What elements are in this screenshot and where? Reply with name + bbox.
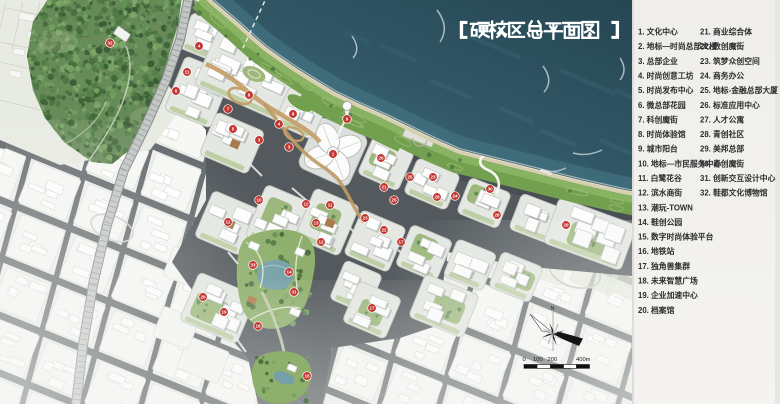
svg-text:3. 总部企业: 3. 总部企业 [638,56,678,66]
svg-text:28: 28 [494,213,500,218]
svg-text:12: 12 [303,202,309,207]
svg-text:1. 文化中心: 1. 文化中心 [638,27,678,37]
svg-text:28: 28 [434,195,440,200]
svg-text:20. 档案馆: 20. 档案馆 [638,305,675,315]
svg-text:23: 23 [362,216,368,221]
svg-text:3: 3 [288,145,291,150]
svg-text:7: 7 [227,107,230,112]
svg-text:11: 11 [185,70,190,75]
svg-text:9: 9 [346,117,349,122]
svg-text:30. 青创魔街: 30. 青创魔街 [700,158,744,168]
svg-text:12: 12 [225,220,231,225]
svg-text:17. 独角兽集群: 17. 独角兽集群 [638,261,690,271]
svg-text:16. 地铁站: 16. 地铁站 [638,246,675,256]
svg-text:31. 创新交互设计中心: 31. 创新交互设计中心 [700,173,776,183]
svg-text:31: 31 [291,290,297,295]
svg-text:1: 1 [332,152,335,157]
svg-text:11: 11 [328,203,333,208]
svg-text:4: 4 [278,122,281,127]
svg-text:25. 地标-金融总部大厦: 25. 地标-金融总部大厦 [700,85,778,95]
svg-text:5. 时尚发布中心: 5. 时尚发布中心 [638,85,694,95]
svg-text:10: 10 [256,198,262,203]
svg-text:200: 200 [548,357,558,363]
svg-text:22: 22 [381,228,387,233]
svg-text:23: 23 [430,175,436,180]
svg-text:20: 20 [200,295,206,300]
svg-text:23. 筑梦众创空间: 23. 筑梦众创空间 [700,56,760,66]
svg-text:29. 美邦总部: 29. 美邦总部 [700,144,744,154]
svg-text:12. 滨水商街: 12. 滨水商街 [638,188,682,198]
svg-text:33: 33 [250,263,256,268]
svg-text:28. 青创社区: 28. 青创社区 [700,129,744,139]
svg-text:12: 12 [318,240,324,245]
svg-text:11. 白鹭花谷: 11. 白鹭花谷 [638,173,682,183]
svg-text:13. 潮玩-TOWN: 13. 潮玩-TOWN [638,202,693,212]
svg-text:N: N [551,306,555,312]
svg-text:30: 30 [487,187,493,192]
svg-text:26. 标准应用中心: 26. 标准应用中心 [700,100,760,110]
svg-text:0: 0 [523,357,526,363]
svg-text:21: 21 [381,185,387,190]
svg-text:8: 8 [248,93,251,98]
svg-text:26: 26 [378,156,384,161]
svg-text:29: 29 [563,223,569,228]
svg-text:22. 数创魔街: 22. 数创魔街 [700,41,744,51]
svg-text:15. 数字时尚体验平台: 15. 数字时尚体验平台 [638,232,714,242]
svg-text:27. 人才公寓: 27. 人才公寓 [700,114,744,124]
svg-text:8: 8 [292,112,295,117]
svg-text:24: 24 [452,194,458,199]
svg-text:4. 时尚创意工坊: 4. 时尚创意工坊 [638,71,694,81]
svg-text:7. 科创魔街: 7. 科创魔街 [638,114,678,124]
svg-text:19: 19 [221,310,227,315]
svg-text:32. 鞋都文化博物馆: 32. 鞋都文化博物馆 [700,188,768,198]
svg-text:19. 企业加速中心: 19. 企业加速中心 [638,290,698,300]
svg-text:8. 时尚体验馆: 8. 时尚体验馆 [638,129,686,139]
svg-text:24. 商务办公: 24. 商务办公 [700,71,744,81]
svg-text:32: 32 [107,41,113,46]
svg-text:100: 100 [533,357,543,363]
svg-text:25: 25 [391,198,397,203]
svg-text:400m: 400m [576,357,591,363]
svg-text:9. 城市阳台: 9. 城市阳台 [638,144,678,154]
svg-text:5: 5 [232,127,235,132]
svg-text:16: 16 [304,374,310,379]
svg-text:14: 14 [286,270,292,275]
svg-text:18. 未来智慧广场: 18. 未来智慧广场 [638,276,698,286]
svg-text:25: 25 [407,175,413,180]
svg-text:17: 17 [398,240,404,245]
svg-text:17: 17 [369,306,375,311]
svg-text:13: 13 [313,221,319,226]
svg-text:14. 鞋创公园: 14. 鞋创公园 [638,217,682,227]
svg-text:4: 4 [198,44,201,49]
svg-text:6. 微总部花园: 6. 微总部花园 [638,100,686,110]
svg-text:3: 3 [258,138,261,143]
svg-text:18: 18 [255,324,261,329]
svg-text:6: 6 [175,89,178,94]
svg-text:21. 商业综合体: 21. 商业综合体 [700,27,752,37]
